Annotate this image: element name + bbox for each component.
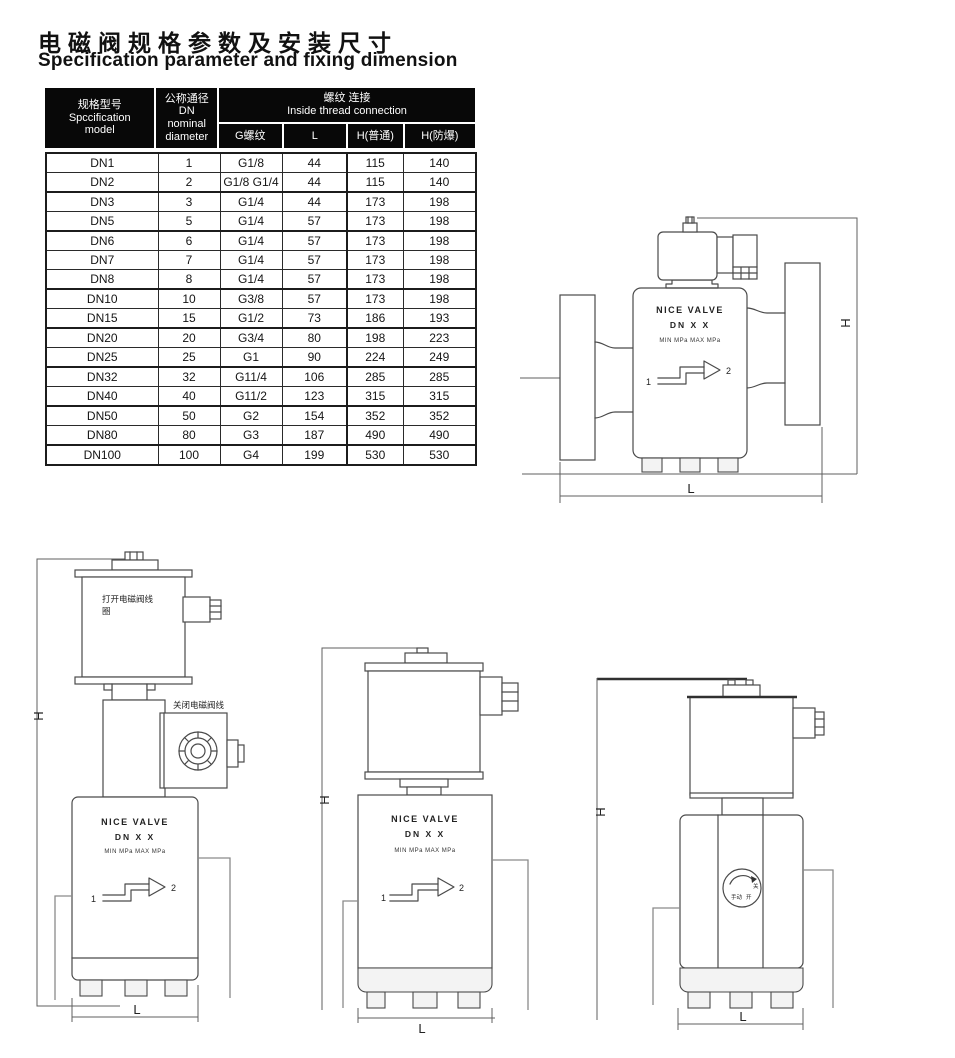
table-cell-l: 187 — [282, 426, 347, 446]
table-cell-h_normal: 198 — [347, 328, 403, 348]
table-cell-dn: 3 — [158, 192, 220, 212]
valve-brand-label: NICE VALVE — [391, 814, 459, 824]
table-cell-l: 44 — [282, 192, 347, 212]
table-row: DN1515G1/273186193 — [46, 309, 476, 329]
table-cell-h_normal: 173 — [347, 289, 403, 309]
table-cell-h_ex: 315 — [403, 387, 476, 407]
table-cell-h_ex: 285 — [403, 367, 476, 387]
table-cell-dn: 10 — [158, 289, 220, 309]
side-connector-end — [238, 745, 244, 762]
dim-l-label: L — [418, 1021, 425, 1036]
header-sub-h-normal: H(普通) — [348, 124, 405, 148]
table-cell-h_normal: 186 — [347, 309, 403, 329]
dial-manual-label: 手动 — [731, 893, 743, 901]
table-cell-h_ex: 140 — [403, 173, 476, 193]
table-cell-g: G1 — [220, 348, 282, 368]
table-cell-h_ex: 352 — [403, 406, 476, 426]
bottom-flange — [358, 968, 492, 992]
table-cell-g: G3/4 — [220, 328, 282, 348]
bolt — [413, 992, 437, 1008]
table-cell-h_normal: 173 — [347, 212, 403, 232]
header-model-zh: 规格型号 — [45, 99, 154, 112]
table-cell-h_normal: 173 — [347, 270, 403, 290]
table-row: DN66G1/457173198 — [46, 231, 476, 251]
open-coil — [82, 577, 185, 677]
bolt — [771, 992, 793, 1008]
bolt — [125, 980, 147, 996]
coil-top-plate — [365, 663, 483, 671]
header-dn-en2: diameter — [156, 131, 217, 144]
table-row: DN33G1/444173198 — [46, 192, 476, 212]
dim-l-label: L — [687, 481, 694, 496]
header-sub-gthread: G螺纹 — [219, 124, 284, 148]
table-cell-model: DN25 — [46, 348, 158, 368]
table-cell-dn: 25 — [158, 348, 220, 368]
header-model: 规格型号 Spccification model — [45, 88, 156, 148]
coil-top-plate — [75, 570, 192, 577]
table-cell-g: G4 — [220, 445, 282, 465]
neck-upper — [400, 779, 448, 787]
table-cell-h_ex: 198 — [403, 212, 476, 232]
table-cell-h_ex: 490 — [403, 426, 476, 446]
connector-step — [480, 677, 502, 715]
bolt — [642, 458, 662, 472]
table-cell-dn: 50 — [158, 406, 220, 426]
header-sub-l: L — [284, 124, 349, 148]
port-2-label: 2 — [726, 366, 731, 376]
coil-bottom-plate — [690, 793, 793, 798]
table-cell-h_normal: 530 — [347, 445, 403, 465]
header-dn: 公称通径 DN nominal diameter — [156, 88, 219, 148]
header-dn-code: DN — [156, 105, 217, 118]
coil-cap-knob — [125, 552, 143, 560]
table-cell-model: DN8 — [46, 270, 158, 290]
cap-notch — [746, 680, 753, 685]
table-cell-g: G1/4 — [220, 212, 282, 232]
table-cell-h_normal: 352 — [347, 406, 403, 426]
neck-nub — [104, 684, 112, 690]
header-model-en2: model — [45, 124, 154, 137]
bottom-flange — [680, 968, 803, 992]
table-row: DN77G1/457173198 — [46, 251, 476, 270]
coil-cap-knob — [417, 648, 428, 653]
table-cell-l: 57 — [282, 270, 347, 290]
table-cell-h_ex: 198 — [403, 270, 476, 290]
table-cell-l: 80 — [282, 328, 347, 348]
header-thread-en: Inside thread connection — [219, 105, 475, 118]
table-cell-h_normal: 173 — [347, 251, 403, 270]
table-cell-model: DN40 — [46, 387, 158, 407]
table-cell-h_normal: 224 — [347, 348, 403, 368]
port-2-label: 2 — [459, 883, 464, 893]
valve-dn-label: DN X X — [670, 320, 710, 330]
table-cell-h_normal: 315 — [347, 387, 403, 407]
table-cell-model: DN50 — [46, 406, 158, 426]
coil — [368, 671, 480, 772]
table-row: DN1010G3/857173198 — [46, 289, 476, 309]
connector-step — [717, 237, 733, 273]
bolt — [680, 458, 700, 472]
table-cell-dn: 100 — [158, 445, 220, 465]
table-cell-h_ex: 249 — [403, 348, 476, 368]
valve-dn-label: DN X X — [405, 829, 445, 839]
diagram-manual-override-valve: H 手动 开 关 L — [590, 668, 910, 1058]
dial-open-label: 开 — [746, 894, 752, 901]
coil-bottom-plate — [75, 677, 192, 684]
table-cell-g: G1/2 — [220, 309, 282, 329]
table-row: DN55G1/457173198 — [46, 212, 476, 232]
table-cell-g: G3 — [220, 426, 282, 446]
dim-h-label: H — [317, 795, 332, 804]
dim-h-label: H — [838, 318, 853, 327]
table-cell-dn: 2 — [158, 173, 220, 193]
table-cell-model: DN80 — [46, 426, 158, 446]
valve-brand-label: NICE VALVE — [656, 305, 724, 315]
valve-dn-label: DN X X — [115, 832, 155, 842]
table-cell-model: DN100 — [46, 445, 158, 465]
dim-l-label: L — [739, 1009, 746, 1024]
table-row: DN3232G11/4106285285 — [46, 367, 476, 387]
table-cell-h_normal: 490 — [347, 426, 403, 446]
table-cell-h_ex: 530 — [403, 445, 476, 465]
table-cell-l: 57 — [282, 251, 347, 270]
table-cell-dn: 7 — [158, 251, 220, 270]
open-coil-label-2: 圈 — [102, 606, 111, 616]
header-sub-h-exproof: H(防爆) — [405, 124, 475, 148]
table-cell-l: 106 — [282, 367, 347, 387]
table-cell-g: G11/2 — [220, 387, 282, 407]
diagram-threaded-valve: H NICE VALVE DN X X MIN MPa MAX MPa 1 2 … — [310, 645, 545, 1045]
table-cell-h_ex: 198 — [403, 251, 476, 270]
table-row: DN11G1/844115140 — [46, 153, 476, 173]
table-cell-model: DN10 — [46, 289, 158, 309]
left-flange — [560, 295, 595, 460]
table-cell-model: DN5 — [46, 212, 158, 232]
table-row: DN8080G3187490490 — [46, 426, 476, 446]
neck — [112, 684, 147, 700]
coil — [690, 697, 793, 795]
header-model-en1: Spccification — [45, 112, 154, 125]
spec-table: DN11G1/844115140DN22G1/8 G1/444115140DN3… — [45, 152, 477, 466]
table-cell-model: DN7 — [46, 251, 158, 270]
open-coil-label: 打开电磁阀线 — [102, 594, 154, 604]
left-pipe-neck — [595, 342, 633, 418]
table-row: DN22G1/8 G1/444115140 — [46, 173, 476, 193]
table-cell-l: 44 — [282, 173, 347, 193]
connector-end — [210, 600, 221, 619]
bolt — [688, 992, 710, 1008]
close-coil-label: 关闭电磁阀线 — [173, 700, 225, 710]
table-cell-h_normal: 285 — [347, 367, 403, 387]
dim-h-label: H — [593, 807, 608, 816]
bolt — [458, 992, 480, 1008]
diagram-dual-coil-valve: H 打开电磁阀线 圈 关闭电磁阀线 圈 — [25, 548, 315, 1033]
valve-pressure-label: MIN MPa MAX MPa — [104, 849, 165, 855]
port-1-label: 1 — [91, 894, 96, 904]
table-cell-dn: 32 — [158, 367, 220, 387]
coil-cap-knob — [686, 217, 694, 223]
table-cell-g: G2 — [220, 406, 282, 426]
table-row: DN2525G190224249 — [46, 348, 476, 368]
table-cell-dn: 15 — [158, 309, 220, 329]
table-cell-l: 57 — [282, 231, 347, 251]
table-cell-h_ex: 198 — [403, 231, 476, 251]
table-cell-l: 57 — [282, 289, 347, 309]
table-cell-model: DN6 — [46, 231, 158, 251]
table-cell-model: DN20 — [46, 328, 158, 348]
valve-pressure-label: MIN MPa MAX MPa — [659, 338, 720, 344]
table-cell-g: G1/4 — [220, 192, 282, 212]
table-cell-model: DN32 — [46, 367, 158, 387]
connector-step — [793, 708, 815, 738]
table-cell-dn: 40 — [158, 387, 220, 407]
table-cell-model: DN15 — [46, 309, 158, 329]
table-cell-h_ex: 198 — [403, 192, 476, 212]
page-title-en: Specification parameter and fixing dimen… — [38, 50, 458, 72]
table-row: DN5050G2154352352 — [46, 406, 476, 426]
table-cell-h_ex: 193 — [403, 309, 476, 329]
dial-close-label: 关 — [753, 882, 759, 890]
table-cell-l: 154 — [282, 406, 347, 426]
valve-brand-label: NICE VALVE — [101, 817, 169, 827]
table-cell-h_normal: 115 — [347, 153, 403, 173]
connector-end — [815, 712, 824, 735]
dim-h-label: H — [31, 711, 46, 720]
table-row: DN2020G3/480198223 — [46, 328, 476, 348]
neck — [722, 798, 763, 815]
dim-l-label: L — [133, 1002, 140, 1017]
port-2-label: 2 — [171, 883, 176, 893]
table-cell-h_ex: 198 — [403, 289, 476, 309]
l-dimension-line — [358, 1008, 495, 1023]
bolt — [718, 458, 738, 472]
right-pipe-neck — [747, 308, 785, 388]
header-thread-zh: 螺纹 连接 — [219, 92, 475, 105]
document-page: 电磁阀规格参数及安装尺寸 Specification parameter and… — [0, 0, 955, 1058]
connector-end — [502, 683, 518, 711]
side-connector — [227, 740, 238, 767]
table-cell-l: 90 — [282, 348, 347, 368]
table-cell-h_normal: 173 — [347, 192, 403, 212]
header-thread-group: 螺纹 连接 Inside thread connection G螺纹 L H(普… — [219, 88, 475, 148]
table-cell-l: 44 — [282, 153, 347, 173]
table-cell-g: G11/4 — [220, 367, 282, 387]
header-thread-title: 螺纹 连接 Inside thread connection — [219, 88, 475, 124]
table-row: DN100100G4199530530 — [46, 445, 476, 465]
table-cell-dn: 5 — [158, 212, 220, 232]
table-cell-g: G1/4 — [220, 270, 282, 290]
spec-table-header: 规格型号 Spccification model 公称通径 DN nominal… — [45, 88, 475, 148]
coil-bottom-plate — [365, 772, 483, 779]
table-cell-dn: 80 — [158, 426, 220, 446]
table-cell-dn: 1 — [158, 153, 220, 173]
bolt — [80, 980, 102, 996]
table-cell-g: G1/8 G1/4 — [220, 173, 282, 193]
right-flange — [785, 263, 820, 425]
diagram-flanged-valve: NICE VALVE DN X X MIN MPa MAX MPa 1 2 H … — [520, 195, 950, 510]
connector-box — [183, 597, 210, 622]
table-cell-g: G1/8 — [220, 153, 282, 173]
table-cell-h_normal: 173 — [347, 231, 403, 251]
table-cell-h_ex: 140 — [403, 153, 476, 173]
header-dn-en1: nominal — [156, 118, 217, 131]
table-cell-l: 123 — [282, 387, 347, 407]
table-cell-g: G1/4 — [220, 231, 282, 251]
coil-cap — [723, 685, 760, 697]
port-1-label: 1 — [646, 377, 651, 387]
table-cell-model: DN1 — [46, 153, 158, 173]
table-cell-model: DN2 — [46, 173, 158, 193]
table-cell-dn: 6 — [158, 231, 220, 251]
neck-lower — [407, 787, 441, 795]
port-1-label: 1 — [381, 893, 386, 903]
table-cell-g: G1/4 — [220, 251, 282, 270]
table-cell-g: G3/8 — [220, 289, 282, 309]
valve-pressure-label: MIN MPa MAX MPa — [394, 848, 455, 854]
neck-nub — [147, 684, 155, 690]
table-cell-h_ex: 223 — [403, 328, 476, 348]
table-row: DN4040G11/2123315315 — [46, 387, 476, 407]
spec-table-body: DN11G1/844115140DN22G1/8 G1/444115140DN3… — [46, 153, 476, 465]
bolt — [730, 992, 752, 1008]
table-cell-h_normal: 115 — [347, 173, 403, 193]
table-cell-dn: 20 — [158, 328, 220, 348]
coil-cap — [683, 223, 697, 232]
cap-notch — [728, 680, 735, 685]
upper-body-column — [103, 700, 165, 797]
coil — [658, 232, 717, 280]
connector-box — [733, 235, 757, 279]
coil-base — [666, 280, 718, 288]
table-cell-l: 73 — [282, 309, 347, 329]
header-dn-zh: 公称通径 — [156, 93, 217, 106]
coil-cap — [405, 653, 447, 663]
bolt — [165, 980, 187, 996]
table-cell-l: 199 — [282, 445, 347, 465]
bolt — [367, 992, 385, 1008]
coil-cap — [112, 560, 158, 570]
table-cell-dn: 8 — [158, 270, 220, 290]
table-cell-model: DN3 — [46, 192, 158, 212]
table-row: DN88G1/457173198 — [46, 270, 476, 290]
table-cell-l: 57 — [282, 212, 347, 232]
